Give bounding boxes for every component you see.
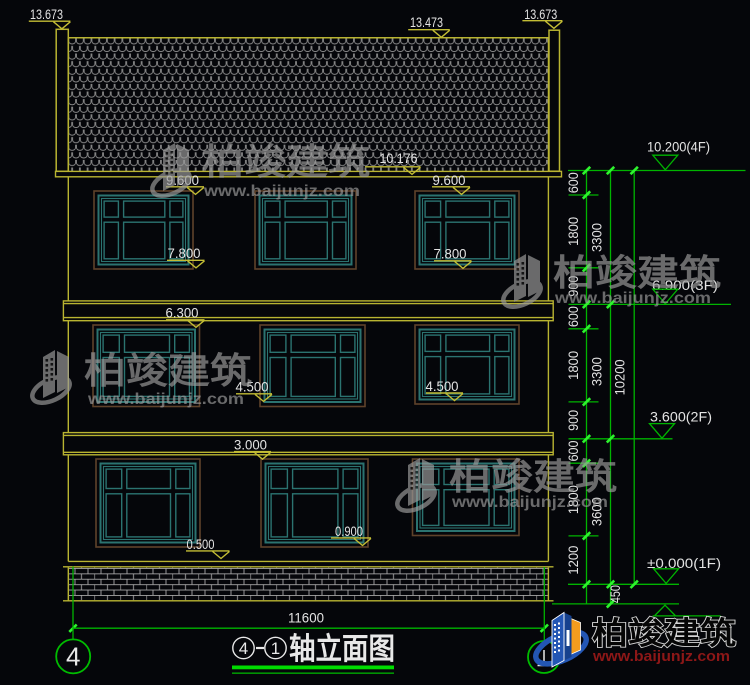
svg-text:13.673: 13.673 — [30, 7, 63, 22]
svg-text:www.baijunjz.com: www.baijunjz.com — [592, 648, 730, 665]
svg-text:柏竣建筑: 柏竣建筑 — [202, 141, 370, 182]
svg-text:10.200(4F): 10.200(4F) — [647, 140, 710, 155]
svg-text:3300: 3300 — [590, 223, 605, 252]
svg-text:www.baijunjz.com: www.baijunjz.com — [554, 290, 711, 307]
svg-text:7.800: 7.800 — [434, 247, 467, 262]
svg-text:0.500: 0.500 — [187, 537, 215, 552]
svg-text:1800: 1800 — [566, 351, 581, 380]
svg-text:13.473: 13.473 — [410, 15, 443, 30]
svg-text:www.baijunjz.com: www.baijunjz.com — [203, 183, 360, 200]
svg-text:0.900: 0.900 — [335, 524, 363, 539]
svg-text:11600: 11600 — [288, 611, 324, 626]
svg-text:1: 1 — [271, 639, 280, 658]
svg-text:4: 4 — [239, 639, 248, 658]
svg-text:4: 4 — [66, 642, 80, 672]
svg-text:10.176: 10.176 — [380, 151, 418, 166]
svg-text:柏竣建筑: 柏竣建筑 — [449, 456, 617, 497]
svg-text:600: 600 — [566, 306, 581, 327]
svg-text:柏竣建筑: 柏竣建筑 — [84, 350, 252, 391]
svg-text:柏竣建筑: 柏竣建筑 — [553, 252, 721, 293]
svg-text:1800: 1800 — [566, 217, 581, 246]
svg-text:450: 450 — [608, 585, 623, 603]
svg-text:9.600: 9.600 — [433, 173, 466, 188]
svg-text:10200: 10200 — [613, 359, 628, 395]
svg-text:www.baijunjz.com: www.baijunjz.com — [451, 494, 608, 511]
svg-text:900: 900 — [566, 410, 581, 431]
svg-text:13.673: 13.673 — [524, 7, 557, 22]
svg-text:3.600(2F): 3.600(2F) — [650, 410, 712, 425]
svg-text:4.500: 4.500 — [426, 379, 459, 394]
svg-text:柏竣建筑: 柏竣建筑 — [592, 616, 736, 651]
svg-text:www.baijunjz.com: www.baijunjz.com — [87, 391, 244, 408]
svg-text:3300: 3300 — [590, 357, 605, 386]
svg-text:轴立面图: 轴立面图 — [289, 632, 395, 666]
svg-text:6.300: 6.300 — [166, 306, 199, 321]
svg-text:7.800: 7.800 — [168, 246, 201, 261]
svg-text:3.000: 3.000 — [234, 438, 267, 453]
svg-text:600: 600 — [566, 172, 581, 193]
svg-text:1200: 1200 — [566, 546, 581, 575]
